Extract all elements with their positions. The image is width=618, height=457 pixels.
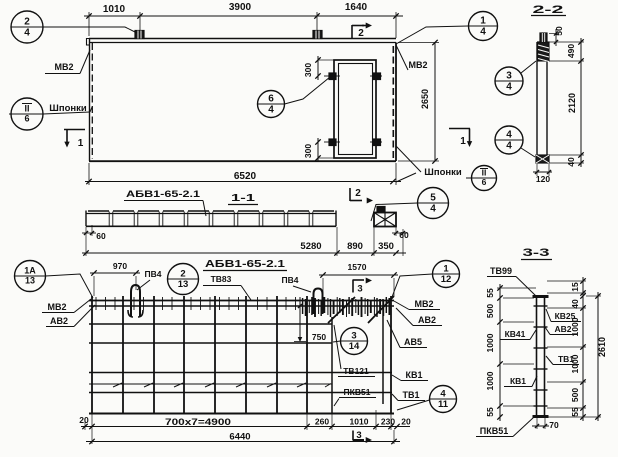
- svg-text:750: 750: [312, 332, 326, 342]
- svg-text:ПКВ51: ПКВ51: [480, 426, 508, 436]
- svg-text:АВ2: АВ2: [50, 316, 68, 326]
- svg-text:6: 6: [268, 94, 274, 105]
- svg-text:4: 4: [506, 82, 512, 93]
- svg-text:1010: 1010: [103, 4, 126, 15]
- svg-text:4: 4: [268, 105, 274, 116]
- svg-text:55: 55: [485, 288, 495, 298]
- svg-text:55: 55: [485, 407, 495, 417]
- svg-text:2: 2: [355, 188, 361, 199]
- svg-text:1570: 1570: [348, 262, 367, 272]
- svg-text:6: 6: [482, 177, 487, 187]
- svg-text:11: 11: [438, 399, 449, 410]
- svg-text:ТВ83: ТВ83: [211, 274, 232, 284]
- svg-text:АБВ1-65-2.1: АБВ1-65-2.1: [205, 259, 286, 270]
- svg-text:ТВ1: ТВ1: [402, 390, 419, 400]
- svg-text:300: 300: [303, 144, 313, 158]
- svg-text:3900: 3900: [229, 2, 252, 13]
- svg-text:Шпонки: Шпонки: [424, 167, 462, 178]
- svg-text:120: 120: [536, 174, 550, 184]
- svg-text:1010: 1010: [350, 417, 369, 427]
- svg-text:ПКВ51: ПКВ51: [344, 387, 371, 397]
- svg-text:3: 3: [356, 430, 361, 441]
- svg-text:40: 40: [570, 299, 580, 309]
- svg-text:500: 500: [570, 388, 580, 402]
- svg-text:1: 1: [460, 136, 466, 147]
- svg-text:3: 3: [357, 284, 362, 295]
- svg-text:1640: 1640: [345, 2, 368, 13]
- svg-text:12: 12: [441, 274, 452, 285]
- svg-text:3: 3: [351, 331, 356, 342]
- svg-text:500: 500: [485, 304, 495, 318]
- svg-text:4: 4: [506, 141, 512, 152]
- svg-text:ТВ99: ТВ99: [490, 266, 512, 276]
- svg-text:20: 20: [401, 417, 411, 427]
- svg-text:5280: 5280: [300, 241, 321, 252]
- svg-text:4: 4: [480, 27, 486, 38]
- svg-text:300: 300: [303, 63, 313, 77]
- svg-text:55: 55: [570, 407, 580, 417]
- svg-text:1А: 1А: [24, 266, 36, 276]
- svg-text:700х7=4900: 700х7=4900: [165, 417, 231, 427]
- svg-text:490: 490: [566, 44, 576, 58]
- svg-text:60: 60: [96, 231, 106, 241]
- svg-text:МВ2: МВ2: [414, 299, 433, 309]
- svg-text:1: 1: [78, 138, 84, 149]
- svg-text:350: 350: [378, 241, 394, 252]
- svg-text:2: 2: [358, 28, 364, 39]
- svg-text:АВ5: АВ5: [404, 337, 422, 347]
- svg-text:4: 4: [430, 204, 436, 215]
- svg-text:1000: 1000: [485, 371, 495, 390]
- svg-text:6440: 6440: [229, 432, 250, 443]
- svg-text:6: 6: [24, 114, 29, 124]
- svg-text:КВ1: КВ1: [510, 376, 526, 386]
- svg-text:14: 14: [349, 341, 360, 352]
- svg-text:2-2: 2-2: [533, 4, 564, 16]
- svg-text:6520: 6520: [234, 171, 257, 182]
- svg-text:2610: 2610: [597, 337, 607, 357]
- svg-text:2: 2: [24, 17, 30, 28]
- svg-text:260: 260: [315, 417, 329, 427]
- svg-text:60: 60: [399, 230, 409, 240]
- svg-text:2120: 2120: [567, 93, 577, 113]
- svg-text:КВ41: КВ41: [505, 329, 526, 339]
- svg-text:1000: 1000: [485, 333, 495, 352]
- svg-text:2650: 2650: [420, 89, 430, 109]
- svg-text:20: 20: [79, 415, 89, 425]
- svg-text:МВ2: МВ2: [408, 60, 427, 70]
- svg-text:70: 70: [549, 420, 559, 430]
- svg-text:890: 890: [347, 241, 363, 252]
- svg-text:2: 2: [180, 269, 185, 280]
- svg-text:230: 230: [381, 417, 395, 427]
- svg-text:ПВ4: ПВ4: [282, 275, 299, 285]
- svg-text:ПВ4: ПВ4: [145, 269, 162, 279]
- svg-text:ТВ1: ТВ1: [558, 354, 574, 364]
- svg-text:13: 13: [178, 279, 189, 290]
- svg-text:13: 13: [25, 276, 35, 286]
- svg-text:КВ25: КВ25: [555, 311, 576, 321]
- svg-text:5: 5: [430, 193, 436, 204]
- svg-text:МВ2: МВ2: [47, 302, 66, 312]
- svg-text:Шпонки: Шпонки: [49, 103, 87, 114]
- svg-text:АВ2: АВ2: [418, 315, 436, 325]
- svg-text:АБВ1-65-2.1: АБВ1-65-2.1: [126, 189, 201, 200]
- svg-text:3: 3: [506, 71, 512, 82]
- svg-text:50: 50: [554, 26, 564, 36]
- svg-text:ТВ121: ТВ121: [343, 366, 369, 376]
- svg-text:1: 1: [480, 16, 486, 27]
- svg-text:4: 4: [440, 389, 446, 400]
- svg-text:АВ2: АВ2: [554, 324, 571, 334]
- svg-text:3-3: 3-3: [523, 247, 550, 259]
- svg-text:МВ2: МВ2: [54, 62, 73, 72]
- svg-text:КВ1: КВ1: [406, 370, 423, 380]
- svg-text:15: 15: [570, 282, 580, 292]
- svg-text:4: 4: [24, 28, 30, 39]
- svg-text:970: 970: [113, 261, 127, 271]
- svg-text:40: 40: [566, 157, 576, 167]
- svg-text:4: 4: [506, 130, 512, 141]
- svg-text:1-1: 1-1: [231, 193, 256, 204]
- svg-text:II: II: [24, 104, 29, 114]
- svg-text:1: 1: [443, 264, 449, 275]
